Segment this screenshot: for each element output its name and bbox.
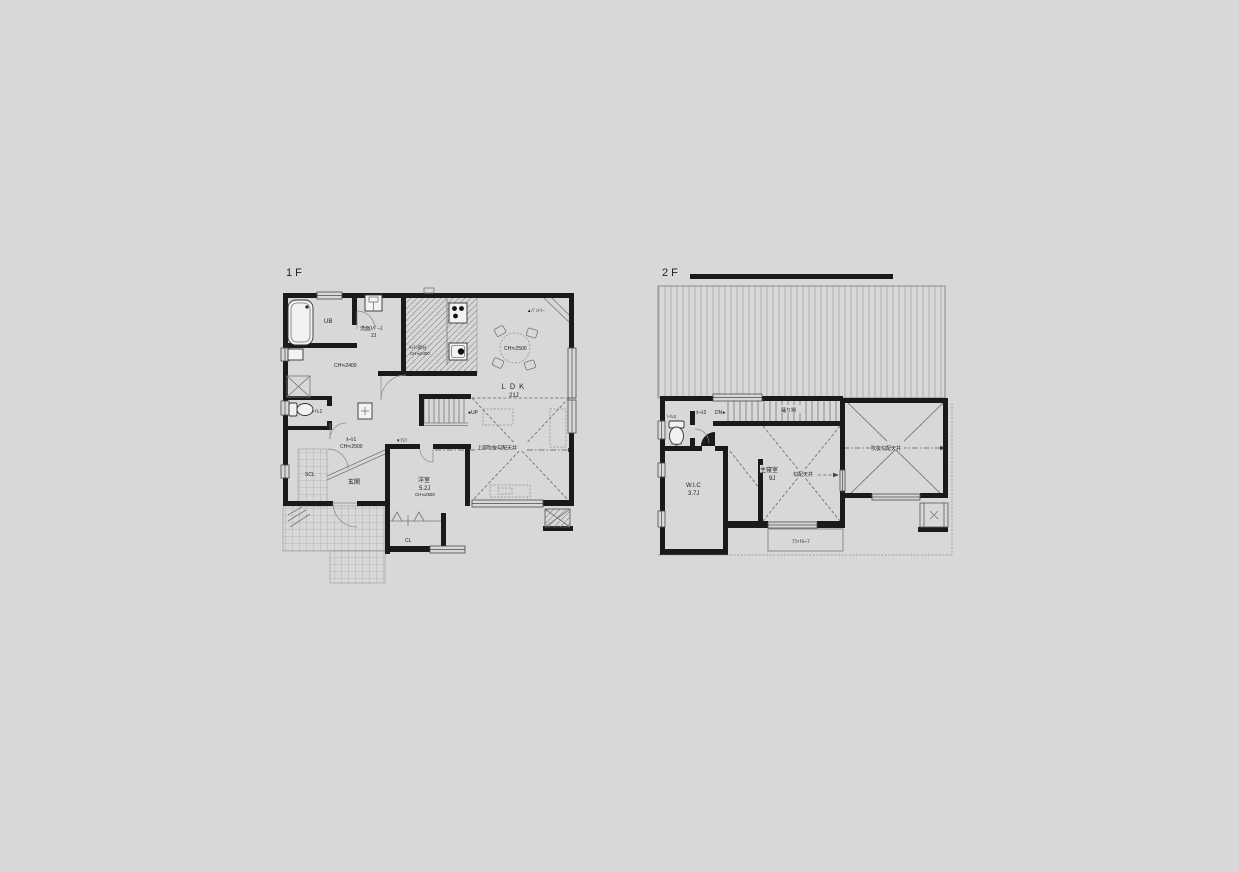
wic-door-leaf xyxy=(701,432,715,446)
sink-icon xyxy=(449,343,467,360)
bedroom-ceiling-x xyxy=(730,426,840,521)
porch-tile-floor xyxy=(283,506,385,551)
label-yoshitsu-ch: CH≒2500 xyxy=(415,492,435,497)
label-void-note: 上部吹抜勾配天井 xyxy=(477,445,517,452)
label-pantry: ▲ﾊﾟﾝﾄﾘｰ xyxy=(527,307,545,313)
label-toilet2: ﾄｲﾚ2 xyxy=(667,414,677,419)
corner-bay-2f xyxy=(920,503,948,527)
label-hall2: ﾎｰﾙ2 xyxy=(696,410,707,416)
floor-plan-2f: 2F xyxy=(650,263,962,563)
label-ldk: ＬＤＫ xyxy=(500,383,527,391)
label-bedroom-size: 9J xyxy=(769,476,775,482)
label-handrail: ▼ﾃｽﾘ xyxy=(396,438,407,444)
washbasin-icon xyxy=(358,403,372,419)
label-dining-ch: CH≒2500 xyxy=(504,346,527,352)
corner-pantry-lines xyxy=(544,298,569,322)
label-wic-size: 3.7J xyxy=(688,491,699,497)
drawing-sheet: 1F xyxy=(0,0,1239,872)
bathtub-icon xyxy=(288,300,313,345)
label-scl: SCL xyxy=(305,472,315,478)
fixture-box xyxy=(288,349,303,360)
label-flat-roof: ﾌﾗｯﾄﾙｰﾌ xyxy=(792,539,810,545)
label-void-sloped-ceiling: 吹抜勾配天井 xyxy=(871,445,901,452)
label-kitchen-ch: CH≒2400 xyxy=(410,351,430,356)
entrance-step-diagonal xyxy=(327,450,385,476)
closet-xbox xyxy=(287,376,310,397)
washing-machine-icon xyxy=(365,295,382,311)
porch-tile-extension xyxy=(330,551,385,583)
label-yoshitsu: 洋室 xyxy=(418,476,430,484)
stairs-1f xyxy=(422,399,468,426)
label-dn: DN● xyxy=(715,410,725,416)
stove-icon xyxy=(449,303,467,323)
toilet2-icon xyxy=(669,421,684,445)
vent-stub xyxy=(424,288,434,293)
label-hall-ch: CH≒2400 xyxy=(334,363,357,369)
label-hall1-ch: CH≒2500 xyxy=(340,444,363,450)
floor2-title: 2F xyxy=(662,267,681,279)
floor-plan-1f: 1F xyxy=(278,263,588,593)
label-washspace-size: 2J xyxy=(371,333,377,339)
label-wic: W.I.C xyxy=(686,483,701,489)
toilet1-icon xyxy=(289,403,313,416)
label-ldk-size: 21J xyxy=(509,393,519,399)
label-toilet1: ﾄｲﾚ1 xyxy=(312,409,323,415)
label-washspace: 洗面ｽﾍﾟｰｽ xyxy=(360,325,383,332)
roof-hatch xyxy=(658,286,945,398)
label-up: ●UP xyxy=(468,410,479,416)
label-hall1: ﾎｰﾙ1 xyxy=(346,437,357,443)
floor1-title: 1F xyxy=(286,267,305,279)
label-genkan: 玄関 xyxy=(348,478,360,486)
label-bedroom: 主寝室 xyxy=(760,466,778,474)
bedroom-slope-arrow xyxy=(833,473,839,478)
label-landing: 踊り場 xyxy=(781,407,796,414)
label-ub: UB xyxy=(324,319,332,325)
entrance-step-diagonal2 xyxy=(327,454,385,480)
label-kitchen-note: ｷｯﾁﾝ部分 xyxy=(409,344,427,351)
label-cl: CL xyxy=(405,538,412,544)
cl-hangers xyxy=(390,512,441,526)
corner-bay-1f xyxy=(545,509,570,527)
label-sloped-ceiling: 勾配天井 xyxy=(793,471,813,478)
roof-ridge-wall xyxy=(690,274,893,279)
